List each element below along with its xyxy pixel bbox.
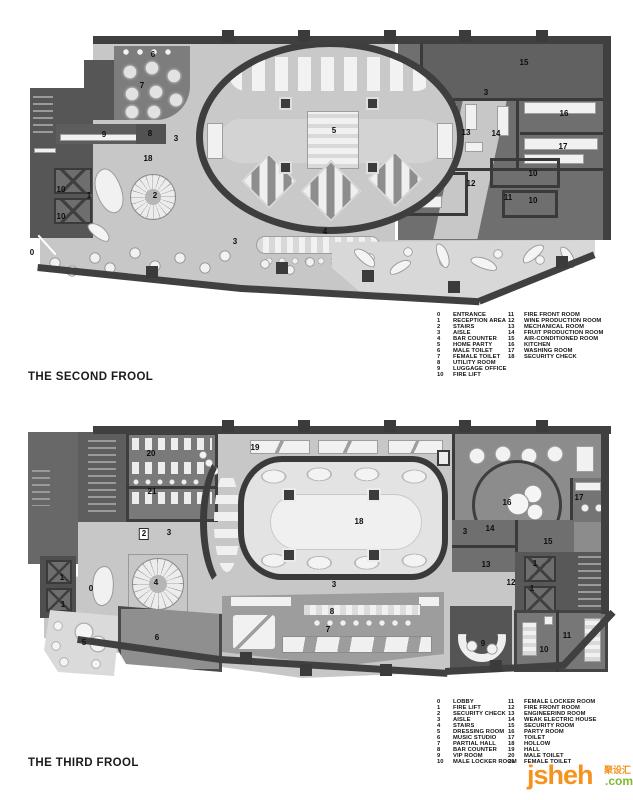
page: 679831815313141617510101203412101110 THE… (0, 0, 633, 800)
room-number: 6 (151, 51, 155, 59)
room-number: 21 (148, 488, 157, 496)
room-labels-third: 202119231831617141513112111045638791011 (0, 0, 633, 800)
room-number: 11 (504, 194, 512, 202)
room-number: 3 (463, 528, 467, 536)
room-number: 15 (544, 538, 553, 546)
room-number: 10 (57, 186, 66, 194)
room-number: 13 (462, 129, 471, 137)
room-number: 10 (57, 213, 66, 221)
room-number: 10 (529, 170, 538, 178)
room-number: 1 (87, 192, 91, 200)
watermark: jsheh 聚设汇 .com (527, 760, 633, 800)
room-number: 17 (559, 143, 568, 151)
legend-number: 21 (508, 759, 524, 765)
legend-third-col1: 0LOBBY1FIRE LIFT2SECURITY CHECK3AISLE4ST… (437, 699, 517, 765)
room-number: 4 (323, 228, 327, 236)
room-number: 1 (60, 574, 64, 582)
room-number: 5 (332, 127, 336, 135)
room-number: 11 (563, 632, 571, 640)
room-number: 2 (153, 192, 157, 200)
room-number: 3 (174, 135, 178, 143)
room-number: 18 (144, 155, 153, 163)
room-number: 14 (492, 130, 501, 138)
room-number: 8 (148, 130, 152, 138)
room-number: 14 (486, 525, 495, 533)
room-number: 0 (89, 585, 93, 593)
room-number: 17 (575, 494, 584, 502)
room-number: 1 (530, 585, 534, 593)
watermark-brand: jsheh (527, 760, 593, 791)
room-number: 6 (155, 634, 159, 642)
room-number: 4 (154, 579, 158, 587)
room-number: 3 (332, 581, 336, 589)
room-number: 3 (233, 238, 237, 246)
room-number: 20 (147, 450, 156, 458)
room-number: 13 (482, 561, 491, 569)
room-number: 18 (355, 518, 364, 526)
room-number: 19 (251, 444, 260, 452)
room-number: 10 (529, 197, 538, 205)
room-number: 15 (520, 59, 529, 67)
room-number: 16 (560, 110, 569, 118)
room-number: 7 (140, 82, 144, 90)
legend-third-col2: 11FEMALE LOCKER ROOM12FIRE FRONT ROOM13E… (508, 699, 596, 765)
room-number: 9 (481, 640, 485, 648)
room-number: 1 (533, 560, 537, 568)
room-number: 3 (484, 89, 488, 97)
watermark-suffix: .com (605, 774, 633, 788)
floorplan-third: 202119231831617141513112111045638791011 (0, 0, 633, 400)
room-number: 12 (507, 579, 516, 587)
room-number: 1 (61, 601, 65, 609)
room-number: 2 (139, 528, 149, 540)
room-number: 10 (540, 646, 549, 654)
room-number: 3 (167, 529, 171, 537)
floor-title-third: THE THIRD FROOL (28, 757, 139, 769)
room-number: 5 (82, 639, 86, 647)
room-number: 0 (30, 249, 34, 257)
room-number: 7 (326, 626, 330, 634)
room-number: 12 (467, 180, 476, 188)
legend-item: 10MALE LOCKER ROOM (437, 759, 517, 765)
room-number: 16 (503, 499, 512, 507)
room-number: 9 (102, 131, 106, 139)
room-number: 8 (330, 608, 334, 616)
legend-number: 10 (437, 759, 453, 765)
